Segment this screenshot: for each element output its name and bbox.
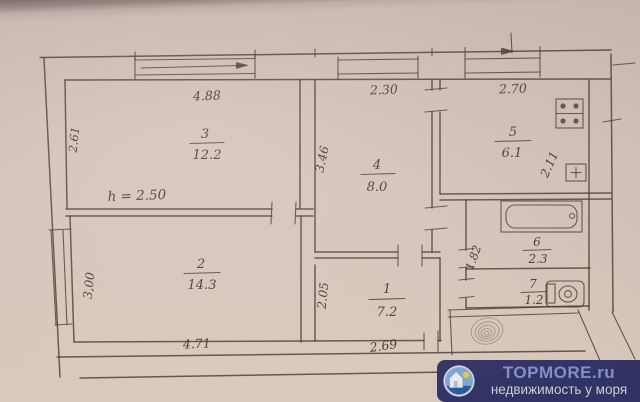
room2-number: 2 [196,257,205,272]
house-and-sun-logo-icon [442,364,476,398]
room3-top-dim: 4.88 [192,88,221,104]
room7-area: 1.2 [524,293,543,307]
inner-walls [65,79,611,352]
room1-number: 1 [383,282,391,297]
room3-number: 3 [201,127,209,142]
room1-label: 1 7.2 [369,282,405,320]
arrow-right-icon [236,62,249,69]
floorplan-photo: 4.88 2.30 2.70 2.61 3.46 2.11 3,00 2.05 … [0,0,640,402]
room2-side-dim: 3,00 [81,271,98,299]
room1-bottom-dim: 2.69 [368,336,399,355]
floorplan-drawing: 4.88 2.30 2.70 2.61 3.46 2.11 3,00 2.05 … [0,0,640,402]
room6-label: 6 2.3 [523,235,551,266]
ceiling-height-note: h = 2.50 [107,187,167,205]
sink-icon [566,164,586,181]
dimension-labels: 4.88 2.30 2.70 2.61 3.46 2.11 3,00 2.05 … [66,81,562,356]
room7-label: 7 1.2 [521,277,547,307]
room2-bottom-dim: 4.71 [181,335,211,351]
watermark: TOPMORE.ru недвижимость у моря [437,360,640,402]
room3-side-dim: 2.61 [66,126,83,154]
room7-number: 7 [529,277,537,291]
window-room2 [49,229,72,325]
room5-top-dim: 2.70 [498,81,527,97]
room5-area: 6.1 [502,146,523,161]
room6-number: 6 [533,235,541,249]
room3-area: 12.2 [193,148,222,163]
room4-number: 4 [372,158,381,173]
spiral-stamp-icon [468,315,505,348]
room5-side-dim: 2.11 [537,149,561,180]
arrow-right-icon [501,48,515,56]
window-room5 [465,54,540,78]
room4-top-dim: 2.30 [369,82,398,98]
room2-area: 14.3 [188,278,217,293]
window-room4 [338,56,418,79]
watermark-text: TOPMORE.ru недвижимость у моря [482,364,640,397]
room6-area: 2.3 [527,252,547,266]
room5-number: 5 [509,125,517,140]
watermark-brand: TOPMORE.ru [503,364,615,382]
bathtub-icon [501,201,582,232]
room4-area: 8.0 [367,180,388,195]
room3-label: 3 12.2 [190,127,224,163]
window-room3 [135,55,255,79]
room1-side-dim: 2.05 [315,282,332,311]
room5-label: 5 6.1 [495,125,531,161]
stove-icon [556,99,583,128]
watermark-tagline: недвижимость у моря [491,383,627,397]
room2-label: 2 14.3 [184,257,220,293]
toilet-icon [546,281,584,307]
room4-label: 4 8.0 [361,158,395,195]
room1-area: 7.2 [377,305,398,320]
